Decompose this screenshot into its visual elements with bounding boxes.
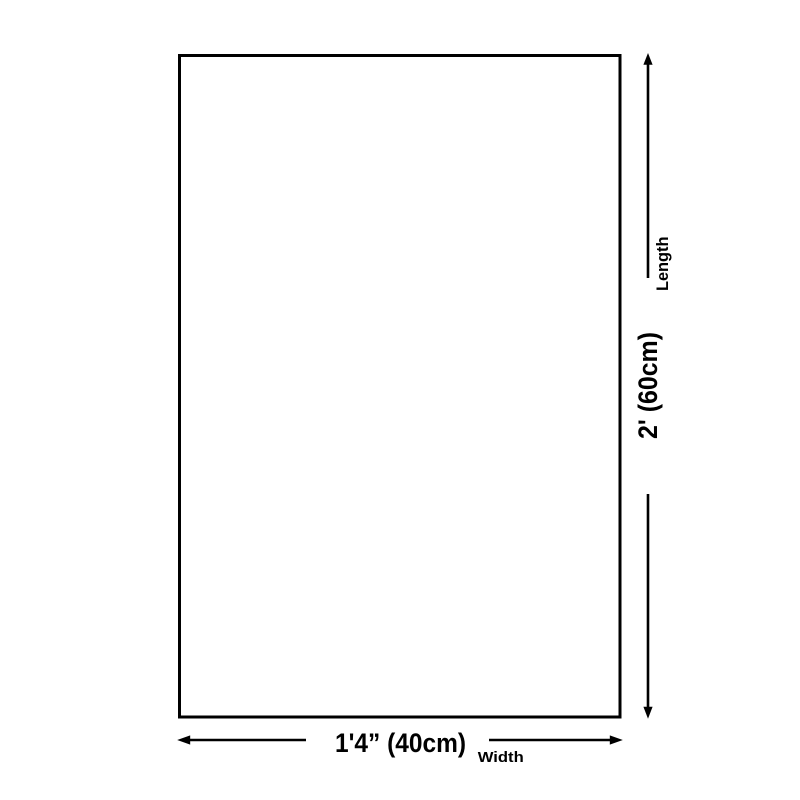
svg-text:Width: Width <box>478 749 524 766</box>
svg-text:2' (60cm): 2' (60cm) <box>633 332 663 439</box>
svg-text:Length: Length <box>653 237 672 292</box>
svg-text:1'4” (40cm): 1'4” (40cm) <box>335 728 466 758</box>
